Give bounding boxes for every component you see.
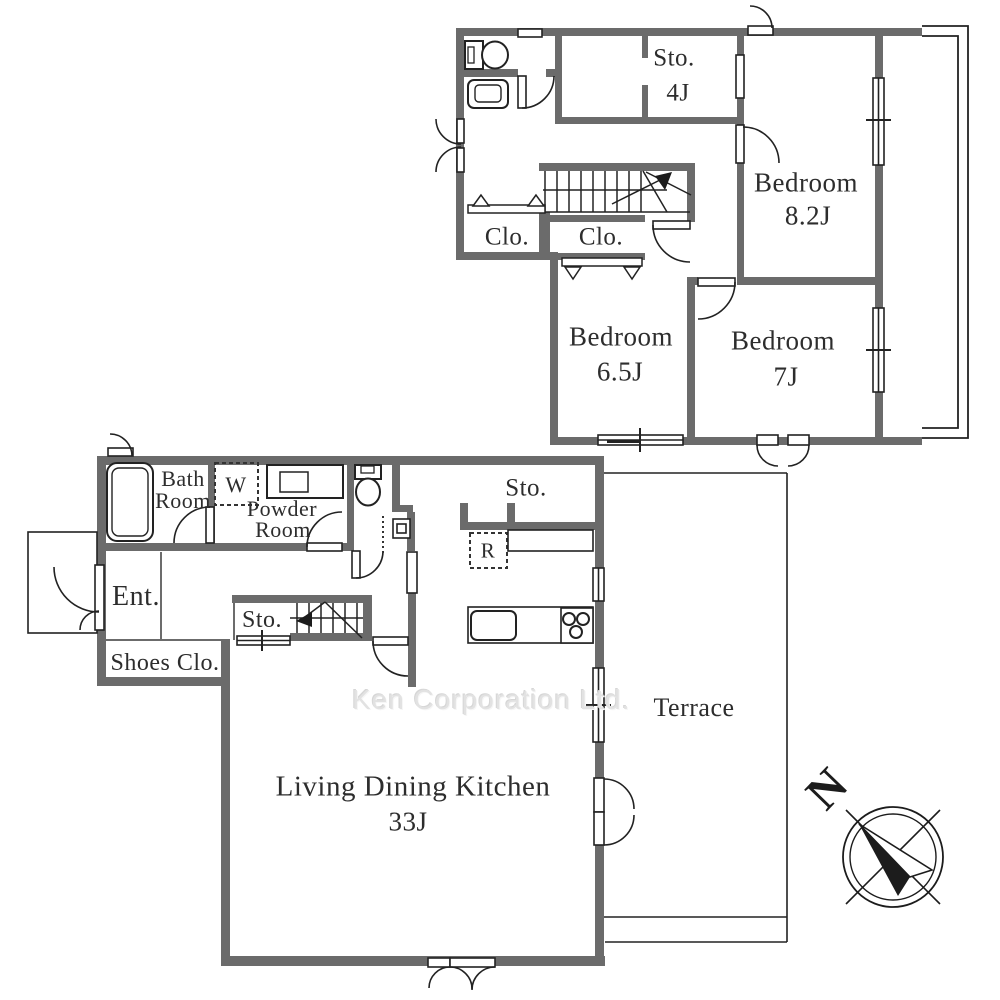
label-powder-2: Room [255,519,311,541]
label-bedroom-c: Bedroom [731,328,835,355]
label-ldk-size: 33J [388,809,427,836]
label-bath-2: Room [155,490,211,512]
floor2-windows [518,29,891,452]
label-bedroom-a-size: 8.2J [785,203,831,230]
label-shoes-closet: Shoes Clo. [110,651,219,675]
kitchen-storage-counter [508,530,593,551]
toilet-icon-1f [355,465,381,506]
label-storage-2f: Sto. [653,46,695,71]
compass-icon [843,807,943,907]
label-bath-1: Bath [161,468,205,490]
label-bedroom-b: Bedroom [569,324,673,351]
porch-outline [28,532,97,633]
stove-icon [561,608,593,643]
toilet-icon-2f [465,41,508,69]
corner-sink-icon [393,519,410,538]
label-terrace: Terrace [653,695,734,721]
floorplan-drawing [0,0,1000,1000]
stairs-down-icon [290,602,363,638]
label-entrance: Ent. [112,583,160,611]
stairs-up-icon [543,171,691,212]
label-ldk: Living Dining Kitchen [276,773,551,802]
label-bedroom-b-size: 6.5J [597,359,643,386]
label-storage-2f-size: 4J [666,81,689,106]
label-closet-left: Clo. [485,225,529,250]
label-kitchen-storage: Sto. [505,476,547,501]
label-closet-mid: Clo. [579,225,623,250]
label-under-stair-storage: Sto. [242,608,282,632]
label-washer: W [225,474,246,496]
watermark-text: Ken Corporation Ltd. [352,684,630,716]
balcony-rail [922,26,968,438]
floorplan-canvas: Ken Corporation Ltd. Sto. 4J Bedroom 8.2… [0,0,1000,1000]
label-bedroom-a: Bedroom [754,170,858,197]
label-bedroom-c-size: 7J [773,364,798,391]
washbasin-icon-2f [468,80,508,108]
vanity-icon [267,465,343,498]
label-refrigerator: R [481,541,496,562]
bathtub-icon [107,463,153,541]
